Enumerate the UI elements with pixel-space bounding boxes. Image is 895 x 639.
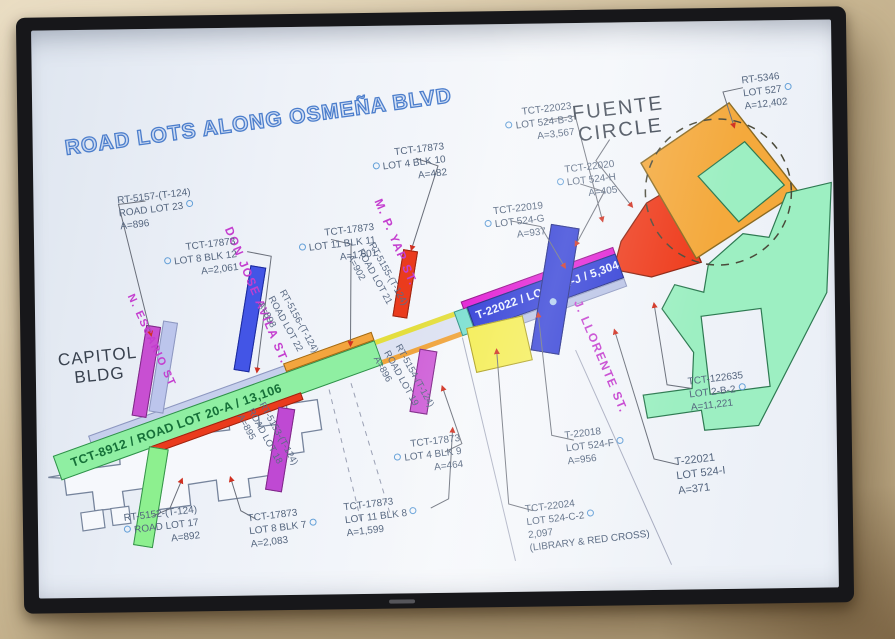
- lot-label-tct122635: TCT-122635 LOT 2-B-2 A=11,221: [687, 369, 751, 415]
- lot-marker-icon: [738, 383, 746, 391]
- capitol-bldg-label: CAPITOL BLDG: [57, 343, 140, 389]
- lot-marker-icon: [372, 162, 380, 170]
- lot-marker-icon: [616, 437, 624, 445]
- lot-marker-icon: [409, 507, 417, 515]
- lot-marker-icon: [164, 257, 172, 265]
- lot-label-rt5346: RT-5346 LOT 527 A=12,402: [741, 68, 797, 113]
- lot-marker-icon: [298, 243, 306, 251]
- lot-marker-icon: [484, 220, 492, 228]
- lot-marker-icon: [309, 518, 317, 526]
- lot-label-t22021: T-22021 LOT 524-I A=371: [674, 450, 728, 498]
- lot-label-blk7: TCT-17873 LOT 8 BLK 7 A=2,083: [247, 504, 322, 551]
- lot-marker-icon: [394, 453, 402, 461]
- slide-canvas: TCT-8912 / ROAD LOT 20-A / 13,106 T-2202…: [31, 19, 839, 598]
- lot-marker-icon: [505, 121, 513, 129]
- tv-frame: TCT-8912 / ROAD LOT 20-A / 13,106 T-2202…: [16, 6, 854, 614]
- tv-brand-logo: [389, 599, 415, 603]
- lot-marker-icon: [784, 83, 792, 91]
- lot-marker-icon: [587, 509, 595, 517]
- lot-marker-icon: [556, 178, 564, 186]
- lot-label-t22018: T-22018 LOT 524-F A=956: [564, 422, 629, 468]
- lot-marker-icon: [124, 525, 132, 533]
- lot-marker-icon: [186, 200, 194, 208]
- tv-screen: TCT-8912 / ROAD LOT 20-A / 13,106 T-2202…: [31, 19, 839, 598]
